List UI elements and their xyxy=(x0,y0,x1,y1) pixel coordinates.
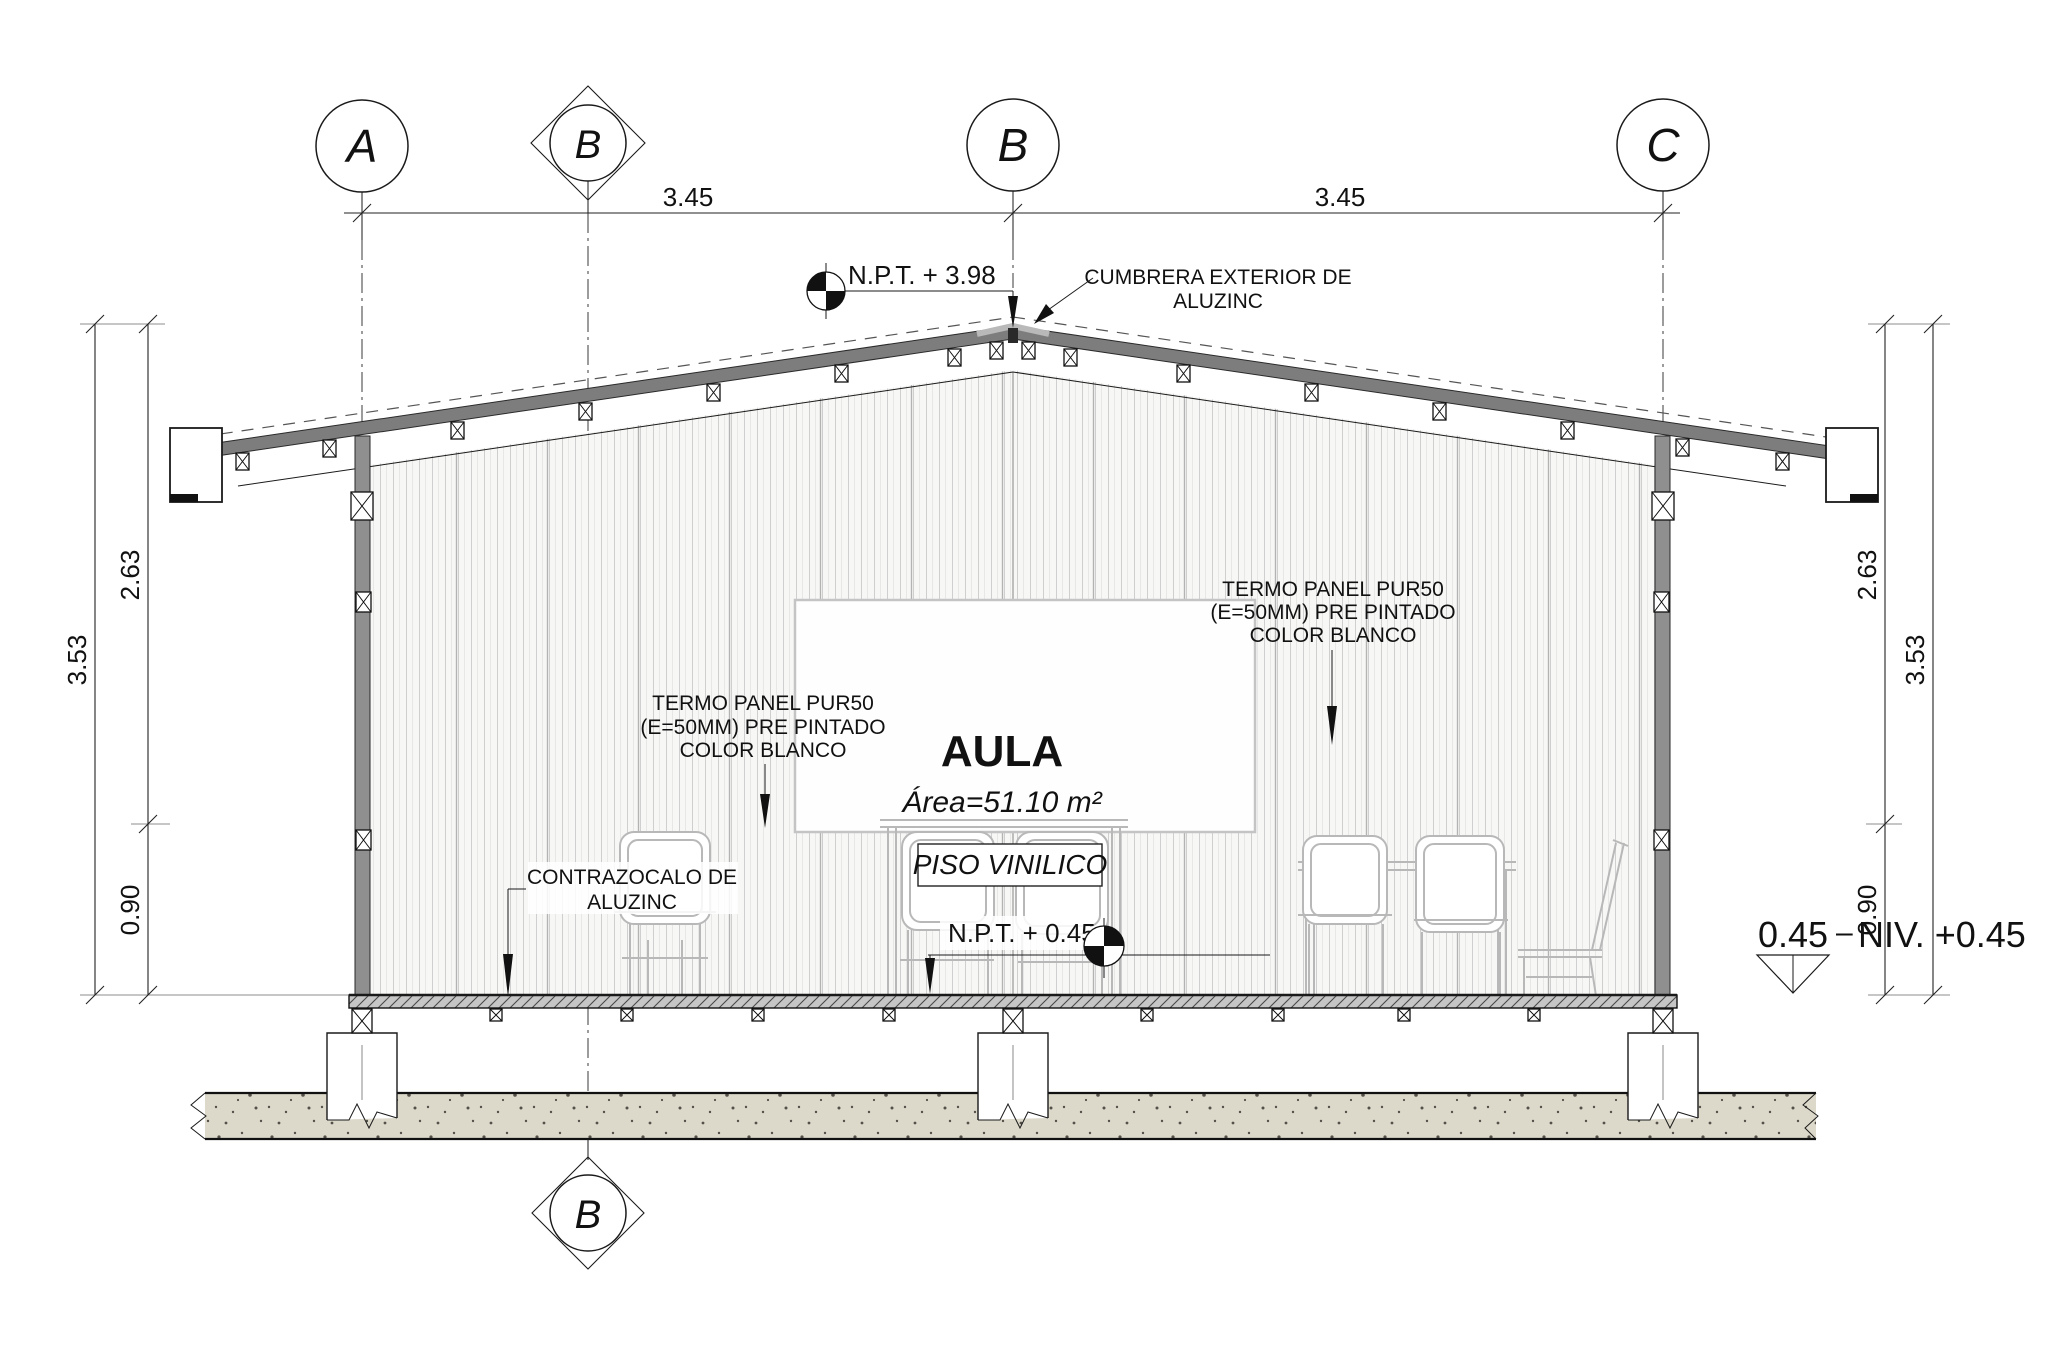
building-section-bb: 3.45 3.45 3.53 2.63 0.90 2.63 0.90 3.53 xyxy=(0,0,2048,1356)
level-text-floor: N.P.T. + 0.45 xyxy=(948,918,1096,948)
dimension-right: 2.63 0.90 3.53 xyxy=(1852,315,1950,1004)
grid-label-b: B xyxy=(998,119,1029,171)
datum-label: NIV. +0.45 xyxy=(1858,914,2026,955)
cumbrera-line-1: CUMBRERA EXTERIOR DE xyxy=(1084,266,1351,289)
contrazocalo-line-2: ALUZINC xyxy=(587,891,677,914)
ground-break-left xyxy=(191,1093,206,1139)
floor-slab-hatch xyxy=(349,995,1677,1008)
foundation-pedestal-a xyxy=(327,1033,397,1128)
dimension-left: 3.53 2.63 0.90 xyxy=(62,315,348,1004)
grid-label-a: A xyxy=(344,120,378,172)
eave-fascia-left xyxy=(170,428,222,502)
grid-bubble-a: A xyxy=(316,100,408,192)
annotation-piso: PISO VINILICO xyxy=(913,844,1108,886)
room-area: Área=51.10 m² xyxy=(900,786,1102,819)
foundation-pedestal-b xyxy=(978,1033,1048,1128)
dim-left-lower: 0.90 xyxy=(115,885,145,936)
dim-left-total: 3.53 xyxy=(62,635,92,686)
floor-assembly xyxy=(349,995,1677,1033)
datum-value: 0.45 xyxy=(1758,914,1828,955)
foundation-pedestal-c xyxy=(1628,1033,1698,1128)
level-text-ridge: N.P.T. + 3.98 xyxy=(848,260,996,290)
dim-span-bc: 3.45 xyxy=(1315,182,1366,212)
wall-column-right xyxy=(1652,436,1674,995)
termo-left-line-3: COLOR BLANCO xyxy=(680,739,847,762)
grid-bubble-b: B xyxy=(967,99,1059,191)
termo-right-line-2: (E=50MM) PRE PINTADO xyxy=(1210,601,1455,624)
down-arrow-icon xyxy=(1008,296,1018,328)
wall-column-left xyxy=(351,436,373,995)
dim-right-upper: 2.63 xyxy=(1852,550,1882,601)
dim-span-ab: 3.45 xyxy=(663,182,714,212)
datum-dash: – xyxy=(1836,916,1853,949)
termo-left-line-1: TERMO PANEL PUR50 xyxy=(652,692,874,715)
eave-fascia-right xyxy=(1826,428,1878,502)
level-marker-ridge: N.P.T. + 3.98 xyxy=(807,260,1018,328)
section-label-top-b: B xyxy=(575,123,602,167)
section-label-bottom-b: B xyxy=(575,1193,602,1237)
contrazocalo-line-1: CONTRAZOCALO DE xyxy=(527,866,737,889)
termo-left-line-2: (E=50MM) PRE PINTADO xyxy=(640,716,885,739)
annotation-cumbrera: CUMBRERA EXTERIOR DE ALUZINC xyxy=(1034,266,1352,324)
section-drawing-canvas: 3.45 3.45 3.53 2.63 0.90 2.63 0.90 3.53 xyxy=(0,0,2048,1356)
room-name: AULA xyxy=(941,727,1063,776)
grid-label-c: C xyxy=(1646,119,1680,171)
ridge-detail xyxy=(1008,328,1018,343)
termo-right-line-1: TERMO PANEL PUR50 xyxy=(1222,578,1444,601)
section-marker-bottom-b: B xyxy=(532,1139,644,1269)
dim-right-total: 3.53 xyxy=(1900,635,1930,686)
piso-label: PISO VINILICO xyxy=(913,849,1108,880)
cumbrera-line-2: ALUZINC xyxy=(1173,290,1263,313)
datum-niv: 0.45 – NIV. +0.45 xyxy=(1757,914,2026,993)
grid-bubble-c: C xyxy=(1617,99,1709,191)
dim-left-upper: 2.63 xyxy=(115,550,145,601)
termo-right-line-3: COLOR BLANCO xyxy=(1250,624,1417,647)
